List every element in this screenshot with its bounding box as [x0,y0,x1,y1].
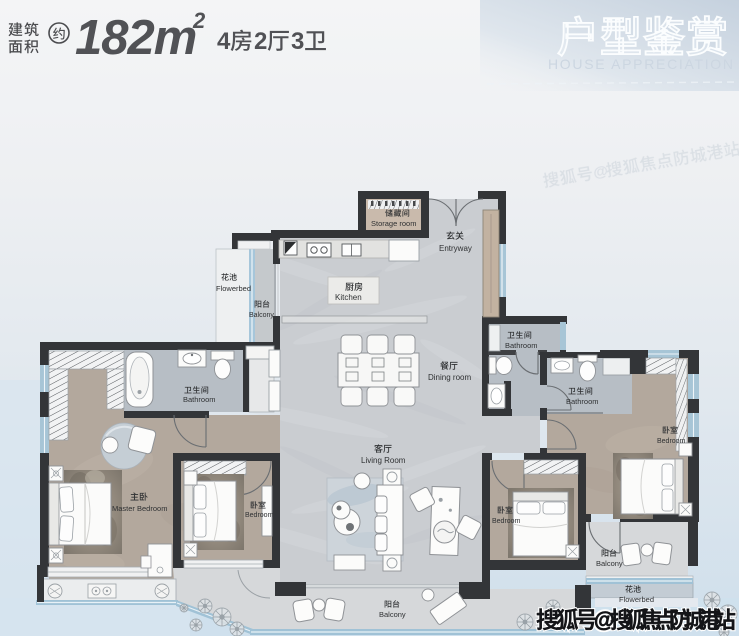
svg-text:4: 4 [217,28,231,55]
svg-text:Bathroom: Bathroom [566,397,599,406]
svg-text:Balcony: Balcony [379,610,406,619]
svg-text:HOUSE APPRECIATION: HOUSE APPRECIATION [548,56,735,72]
svg-text:182m: 182m [75,11,196,65]
svg-text:Entryway: Entryway [439,244,472,253]
svg-text:Master Bedroom: Master Bedroom [112,504,167,513]
svg-text:@: @ [592,162,609,181]
svg-text:Dining room: Dining room [428,373,471,382]
svg-text:Balcony: Balcony [596,559,623,568]
svg-text:Bathroom: Bathroom [505,341,538,350]
svg-text:Bedroom: Bedroom [657,438,686,445]
svg-text:Living Room: Living Room [361,456,406,465]
svg-text:Flowerbed: Flowerbed [216,284,251,293]
svg-text:Storage room: Storage room [371,219,416,228]
svg-text:Bathroom: Bathroom [183,395,216,404]
svg-text:Bedroom: Bedroom [245,512,274,519]
svg-text:2: 2 [254,28,267,55]
svg-text:2: 2 [192,8,206,33]
svg-text:Kitchen: Kitchen [335,293,362,302]
svg-text:3: 3 [291,28,304,55]
svg-text:Balcony: Balcony [249,312,274,319]
svg-text:Bedroom: Bedroom [492,518,521,525]
svg-text:Flowerbed: Flowerbed [619,595,654,604]
